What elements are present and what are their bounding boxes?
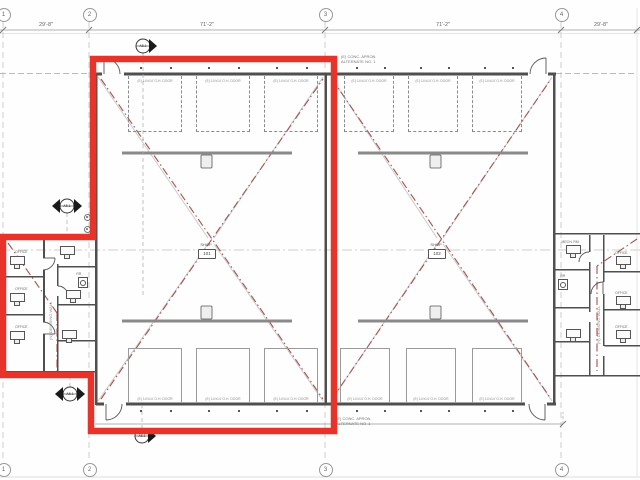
apron-note-top: (E) CONC. APRON ALTERNATE NO. 1 (341, 55, 376, 64)
desk-symbol (62, 330, 77, 339)
oh-door-label: (E) 14'x14' O.H. DOOR (269, 396, 313, 400)
room-tag: MECH. RM (562, 239, 579, 243)
jamb-dot (306, 67, 308, 69)
desk-symbol (566, 329, 581, 338)
room-tag: RR (76, 271, 81, 275)
bay-tag-caption: SHOP (421, 242, 451, 247)
bay-tag-caption: SHOP (191, 242, 221, 247)
jamb-dot (170, 67, 172, 69)
room-tag: RR (560, 273, 565, 277)
desk-symbol (60, 246, 75, 255)
jamb-dot (420, 410, 422, 412)
desk-symbol (66, 290, 81, 299)
jamb-dot (238, 410, 240, 412)
desk-symbol (616, 330, 631, 339)
room-tag: OFFICE (15, 249, 27, 253)
jamb-dot (512, 67, 514, 69)
grid-bubble-3-bottom: 3 (319, 463, 333, 477)
dim-text-3-4: 71'-2" (423, 22, 463, 28)
room-tag: OFFICE (615, 324, 627, 328)
oh-door-zone: (E) 14'x14' O.H. DOOR (128, 76, 182, 132)
desk-symbol (10, 331, 25, 340)
oh-door-zone: (E) 14'x14' O.H. DOOR (340, 348, 390, 403)
jamb-dot (276, 410, 278, 412)
apron-note-bottom-line2: ALTERNATE NO. 1 (336, 422, 371, 427)
oh-door-label: (E) 14'x14' O.H. DOOR (477, 396, 518, 400)
oh-door-zone: (E) 14'x14' O.H. DOOR (264, 348, 318, 403)
desk-symbol (616, 256, 631, 265)
jamb-dot (448, 410, 450, 412)
jamb-dot (170, 410, 172, 412)
room-tag: OFFICE (15, 324, 27, 328)
desk-symbol (616, 296, 631, 305)
oh-door-zone: (E) 14'x14' O.H. DOOR (196, 76, 250, 132)
jamb-dot (448, 67, 450, 69)
apron-note-top-line2: ALTERNATE NO. 1 (341, 60, 376, 65)
grid-bubble-1-bottom: 1 (0, 463, 11, 477)
jamb-dot (306, 410, 308, 412)
dim-text-4-end: 29'-8" (581, 22, 621, 28)
oh-door-zone: (E) 14'x14' O.H. DOOR (128, 348, 182, 403)
annotation-layer: 1 2 3 4 1 2 3 4 29'-8" 71'-2" 71'-2" 29'… (0, 0, 640, 480)
grid-bubble-3-top: 3 (319, 8, 333, 22)
toilet-symbol (558, 279, 568, 290)
oh-door-zone: (E) 14'x14' O.H. DOOR (472, 76, 522, 132)
jamb-dot (420, 67, 422, 69)
grid-bubble-2-top: 2 (83, 8, 97, 22)
jamb-dot (276, 67, 278, 69)
oh-door-label: (E) 14'x14' O.H. DOOR (269, 78, 313, 82)
jamb-dot (356, 67, 358, 69)
dim-text-2-3: 71'-2" (187, 22, 227, 28)
bay-tag-number: 102 (428, 249, 446, 259)
demising-wall-note-left: (N) DEMISING WALL (48, 302, 53, 340)
room-tag: OFFICE (615, 250, 627, 254)
jamb-dot (356, 410, 358, 412)
desk-symbol (10, 256, 25, 265)
keynote-symbol (84, 214, 91, 221)
apron-note-bottom: (E) CONC. APRON ALTERNATE NO. 1 (336, 417, 371, 426)
oh-door-label: (E) 14'x14' O.H. DOOR (201, 78, 245, 82)
oh-door-label: (E) 14'x14' O.H. DOOR (411, 396, 452, 400)
desk-symbol (10, 293, 25, 302)
jamb-dot (140, 410, 142, 412)
jamb-dot (384, 410, 386, 412)
oh-door-label: (E) 14'x14' O.H. DOOR (345, 396, 386, 400)
oh-door-zone: (E) 14'x14' O.H. DOOR (344, 76, 394, 132)
marker-sheet-ref: A5.1 (132, 434, 152, 438)
jamb-dot (208, 67, 210, 69)
oh-door-zone: (E) 14'x14' O.H. DOOR (406, 348, 456, 403)
marker-sheet-ref: A5.1 (133, 44, 153, 48)
jamb-dot (140, 67, 142, 69)
jamb-dot (384, 67, 386, 69)
floor-plan-sheet: 1 2 3 4 1 2 3 4 29'-8" 71'-2" 71'-2" 29'… (0, 0, 640, 480)
room-tag: OFFICE (615, 290, 627, 294)
oh-door-label: (E) 14'x14' O.H. DOOR (349, 78, 390, 82)
demising-wall-note-right: (N) DEMISING WALL (596, 306, 601, 344)
keynote-symbol (84, 226, 91, 233)
jamb-dot (484, 67, 486, 69)
toilet-symbol (78, 277, 88, 288)
bay-tag-number: 101 (198, 249, 216, 259)
jamb-dot (512, 410, 514, 412)
desk-symbol (566, 245, 581, 254)
grid-bubble-1-top: 1 (0, 8, 11, 22)
grid-bubble-2-bottom: 2 (83, 463, 97, 477)
grid-bubble-4-bottom: 4 (555, 463, 569, 477)
dim-text-1-2: 29'-8" (26, 22, 66, 28)
oh-door-zone: (E) 14'x14' O.H. DOOR (408, 76, 458, 132)
oh-door-label: (E) 14'x14' O.H. DOOR (201, 396, 245, 400)
oh-door-zone: (E) 14'x14' O.H. DOOR (264, 76, 318, 132)
oh-door-zone: (E) 14'x14' O.H. DOOR (472, 348, 522, 403)
marker-sheet-ref: A5.1 (60, 392, 80, 396)
room-tag: OFFICE (15, 286, 27, 290)
marker-sheet-ref: A5.1 (57, 204, 77, 208)
oh-door-label: (E) 14'x14' O.H. DOOR (133, 396, 177, 400)
oh-door-zone: (E) 14'x14' O.H. DOOR (196, 348, 250, 403)
jamb-dot (208, 410, 210, 412)
oh-door-label: (E) 14'x14' O.H. DOOR (477, 78, 518, 82)
oh-door-label: (E) 14'x14' O.H. DOOR (133, 78, 177, 82)
grid-bubble-4-top: 4 (555, 8, 569, 22)
oh-door-label: (E) 14'x14' O.H. DOOR (413, 78, 454, 82)
jamb-dot (238, 67, 240, 69)
jamb-dot (484, 410, 486, 412)
